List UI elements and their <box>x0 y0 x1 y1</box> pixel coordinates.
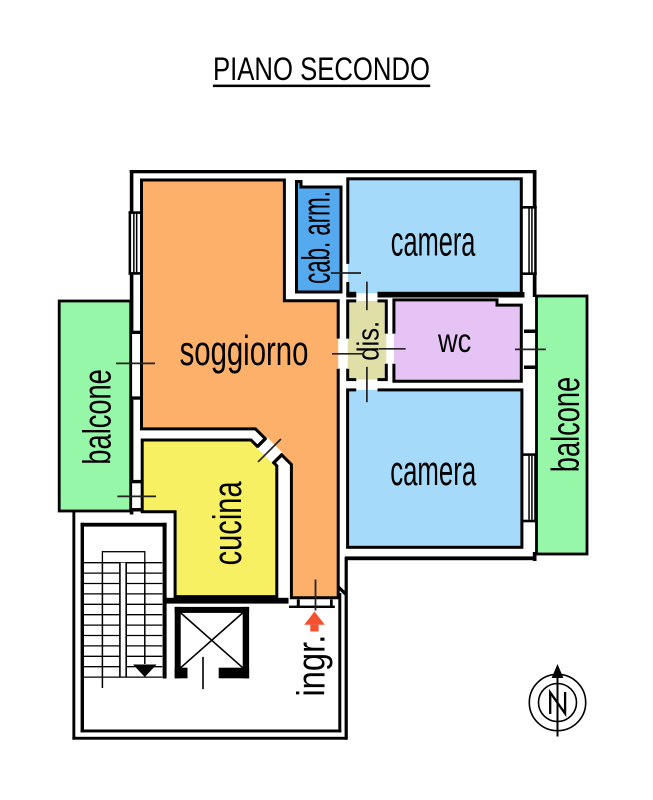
svg-text:camera: camera <box>390 447 476 494</box>
svg-text:camera: camera <box>391 218 476 265</box>
svg-text:cucina: cucina <box>206 481 250 566</box>
svg-text:ingr.: ingr. <box>291 635 334 697</box>
svg-text:balcone: balcone <box>77 369 120 464</box>
svg-text:balcone: balcone <box>545 377 588 472</box>
svg-text:dis.: dis. <box>350 321 385 361</box>
svg-text:wc: wc <box>437 322 471 359</box>
svg-text:cab. arm.: cab. arm. <box>296 191 339 284</box>
svg-text:PIANO SECONDO: PIANO SECONDO <box>213 51 430 87</box>
svg-text:soggiorno: soggiorno <box>180 327 309 374</box>
